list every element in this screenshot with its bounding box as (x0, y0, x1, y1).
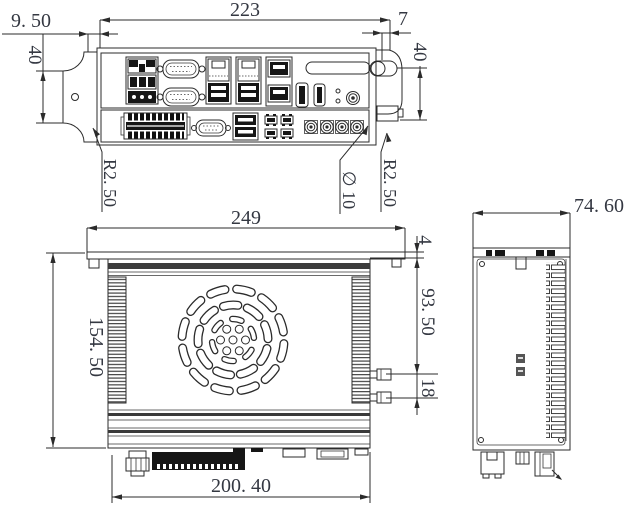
fan-vent (182, 289, 284, 391)
power-plug (481, 452, 504, 474)
top-edge-band (108, 263, 370, 269)
bracket-tab-right (392, 259, 401, 267)
mounting-ear-left (63, 52, 97, 142)
side-dimensions: 74. 60 (473, 195, 624, 248)
heatsink-fins-right (352, 277, 370, 403)
dim-front-offset-right: 7 (398, 8, 408, 30)
side-screw-tl (480, 262, 485, 267)
ear-screw-hole (72, 94, 79, 101)
front-view: 9. 50 223 7 40 40 R2. 50 ∅ 10 R2. 50 (2, 0, 430, 214)
mounting-bracket-strip (87, 252, 405, 259)
lan-usb-combo-2 (236, 57, 261, 104)
technical-drawing-page: 9. 50 223 7 40 40 R2. 50 ∅ 10 R2. 50 (0, 0, 628, 510)
serial-port-2 (157, 88, 205, 106)
dim-top-depth: 154. 50 (85, 317, 107, 377)
rear-port-3 (355, 449, 368, 455)
dim-front-hole-diameter: ∅ 10 (339, 171, 359, 209)
side-screw-br (559, 438, 564, 443)
ear-round-hole (371, 62, 385, 76)
serial-port-1 (157, 60, 205, 78)
side-vent-slats (546, 262, 565, 438)
displayport (314, 84, 325, 106)
led-indicators (336, 89, 340, 103)
rear-port-1 (283, 449, 305, 457)
top-view: 249 154. 50 200. 40 4 93. 50 18 (46, 207, 438, 503)
dim-top-bracket-width: 249 (231, 207, 261, 229)
side-bottom-connectors (481, 452, 562, 480)
dio-connectors (265, 114, 293, 139)
heatsink-fins-left (108, 277, 126, 403)
dim-top-bracket-lip: 4 (414, 235, 435, 245)
vent-slot (306, 62, 370, 74)
io-terminal-block (121, 113, 190, 139)
dim-front-height-left: 40 (24, 46, 45, 65)
screw-connector (129, 451, 146, 458)
technical-drawing: 9. 50 223 7 40 40 R2. 50 ∅ 10 R2. 50 (0, 0, 628, 510)
side-connector-mid (516, 452, 529, 464)
audio-jack (347, 92, 360, 105)
dim-front-offset-left: 9. 50 (11, 10, 51, 32)
dim-top-body-width: 200. 40 (211, 475, 271, 497)
antenna-connectors (305, 121, 364, 134)
lan-usb-combo-1 (206, 57, 231, 104)
dim-top-antenna-spacing: 18 (417, 379, 438, 398)
bracket-tab-left (89, 259, 99, 268)
usb-stack-2 (233, 113, 258, 140)
side-top-marks (486, 250, 555, 256)
dim-front-width: 223 (230, 0, 260, 21)
dim-top-antenna-offset: 93. 50 (417, 288, 438, 336)
mounting-ear-right (370, 50, 403, 121)
hdmi-port (296, 83, 308, 107)
serial-port-3 (192, 120, 231, 136)
bottom-fin-band (108, 410, 370, 444)
rear-connectors (126, 448, 368, 476)
rear-port-2 (317, 449, 348, 459)
dim-front-height-right: 40 (409, 43, 430, 62)
front-dimensions: 9. 50 223 7 40 40 R2. 50 ∅ 10 R2. 50 (2, 0, 430, 214)
side-screw-bl (479, 438, 484, 443)
power-terminal-block (126, 57, 158, 104)
usb-stack-1 (266, 57, 292, 106)
side-view: 74. 60 (473, 195, 624, 480)
dim-front-notch-radius-left: R2. 50 (100, 159, 120, 207)
dim-front-notch-radius-right: R2. 50 (380, 159, 400, 207)
side-labels (516, 354, 525, 376)
dim-side-width: 74. 60 (574, 195, 624, 217)
